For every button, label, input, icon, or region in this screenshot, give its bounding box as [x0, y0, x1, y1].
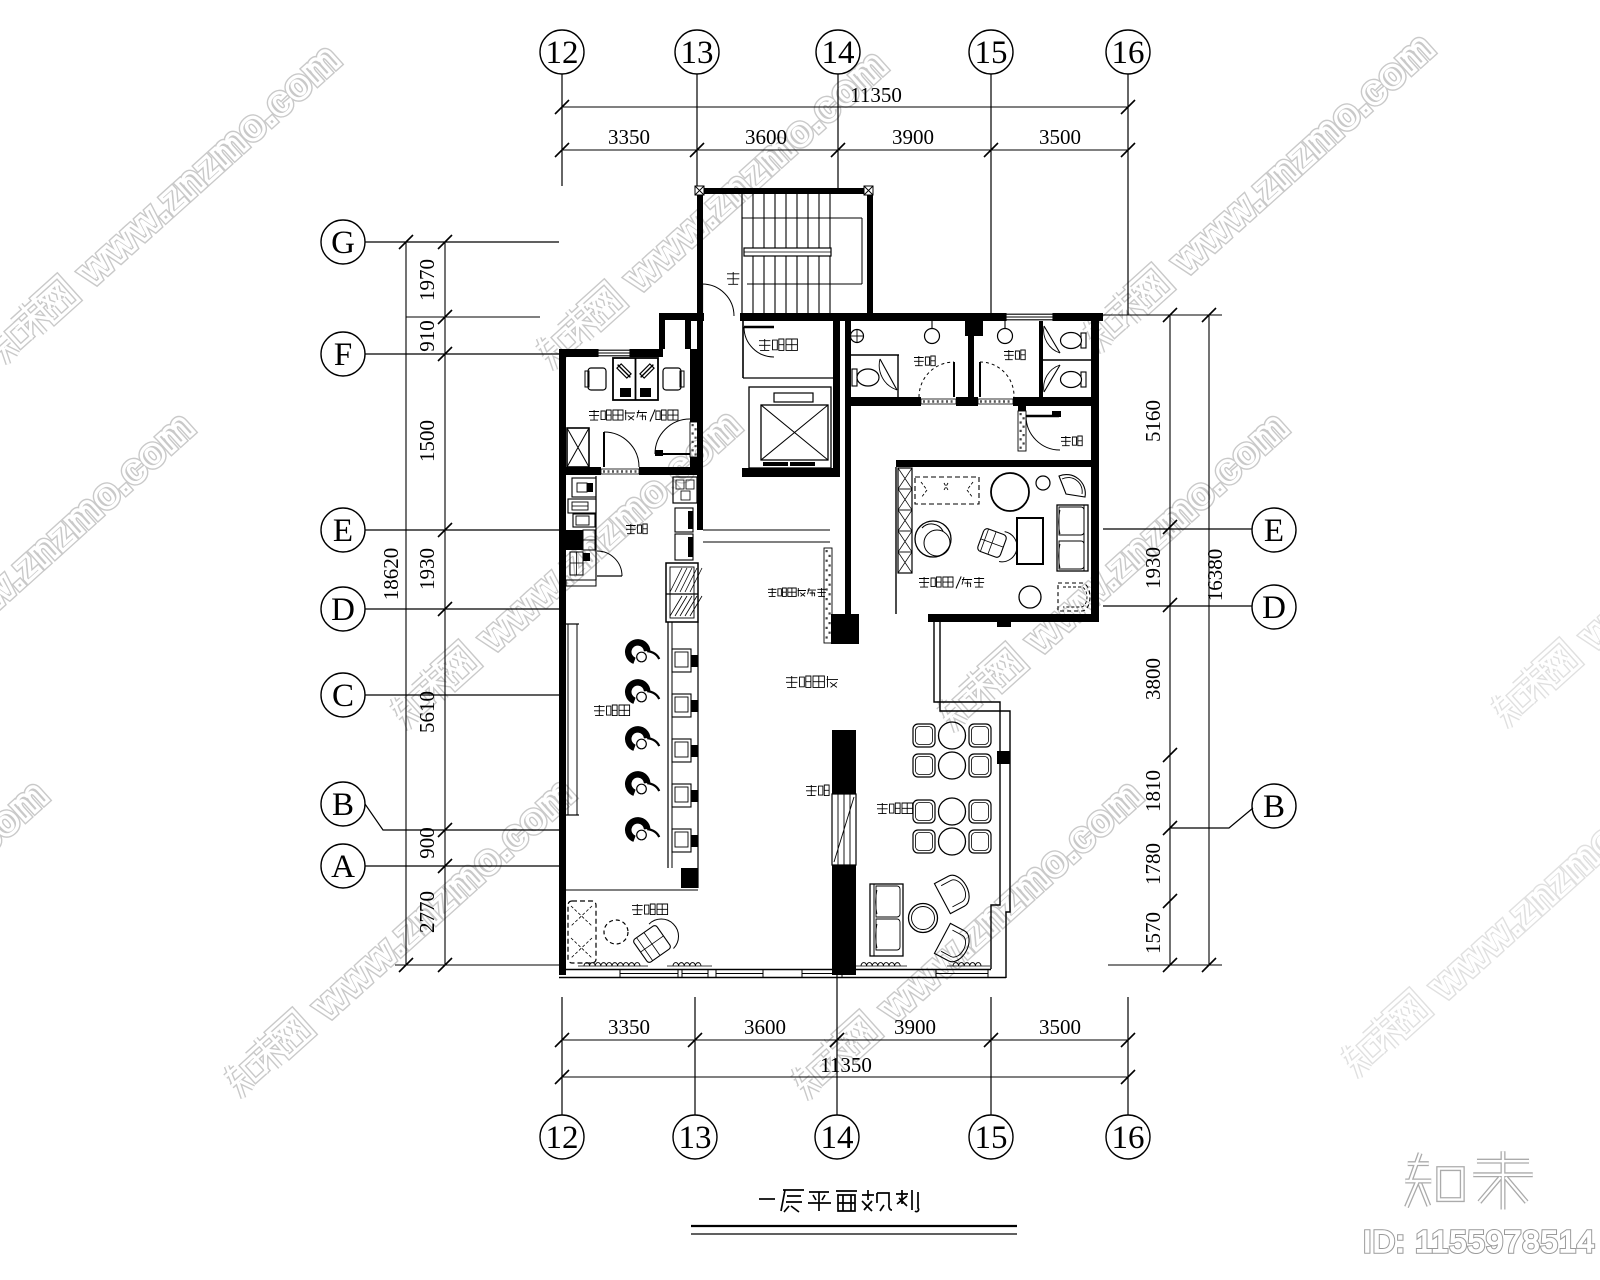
svg-text:16: 16: [1112, 1120, 1145, 1156]
svg-text:900: 900: [415, 827, 439, 859]
svg-text:15: 15: [975, 35, 1008, 71]
svg-text:16: 16: [1112, 35, 1145, 71]
svg-text:2770: 2770: [415, 891, 439, 933]
svg-text:1780: 1780: [1141, 843, 1165, 885]
svg-text:D: D: [331, 592, 355, 628]
svg-text:11350: 11350: [850, 83, 902, 107]
svg-text:C: C: [332, 678, 354, 714]
svg-text:1500: 1500: [415, 420, 439, 462]
svg-text:11350: 11350: [820, 1053, 872, 1077]
svg-text:E: E: [1264, 513, 1284, 549]
svg-text:14: 14: [821, 1120, 854, 1156]
svg-text:B: B: [1263, 789, 1285, 825]
svg-text:3900: 3900: [892, 125, 934, 149]
svg-text:18620: 18620: [379, 548, 403, 601]
svg-text:5610: 5610: [415, 691, 439, 733]
svg-text:A: A: [331, 849, 355, 885]
svg-text:910: 910: [415, 320, 439, 352]
svg-text:15: 15: [975, 1120, 1008, 1156]
svg-text:3600: 3600: [744, 1015, 786, 1039]
svg-text:3500: 3500: [1039, 1015, 1081, 1039]
svg-text:1810: 1810: [1141, 770, 1165, 812]
svg-text:3500: 3500: [1039, 125, 1081, 149]
svg-text:F: F: [334, 337, 352, 373]
svg-text:ID: 1155978514: ID: 1155978514: [1363, 1224, 1595, 1259]
svg-text:16380: 16380: [1203, 549, 1227, 602]
svg-text:13: 13: [681, 35, 714, 71]
svg-text:12: 12: [546, 35, 579, 71]
svg-text:3600: 3600: [745, 125, 787, 149]
svg-text:3350: 3350: [608, 1015, 650, 1039]
svg-text:3800: 3800: [1141, 658, 1165, 700]
svg-text:3350: 3350: [608, 125, 650, 149]
svg-text:5160: 5160: [1141, 400, 1165, 442]
svg-text:1970: 1970: [415, 259, 439, 301]
svg-text:14: 14: [822, 35, 855, 71]
svg-text:E: E: [333, 513, 353, 549]
svg-text:1930: 1930: [415, 548, 439, 590]
svg-text:13: 13: [679, 1120, 712, 1156]
svg-text:12: 12: [546, 1120, 579, 1156]
svg-text:B: B: [332, 787, 354, 823]
svg-text:D: D: [1262, 590, 1286, 626]
svg-text:G: G: [331, 225, 355, 261]
svg-text:1930: 1930: [1141, 547, 1165, 589]
svg-text:1570: 1570: [1141, 912, 1165, 954]
svg-text:3900: 3900: [894, 1015, 936, 1039]
